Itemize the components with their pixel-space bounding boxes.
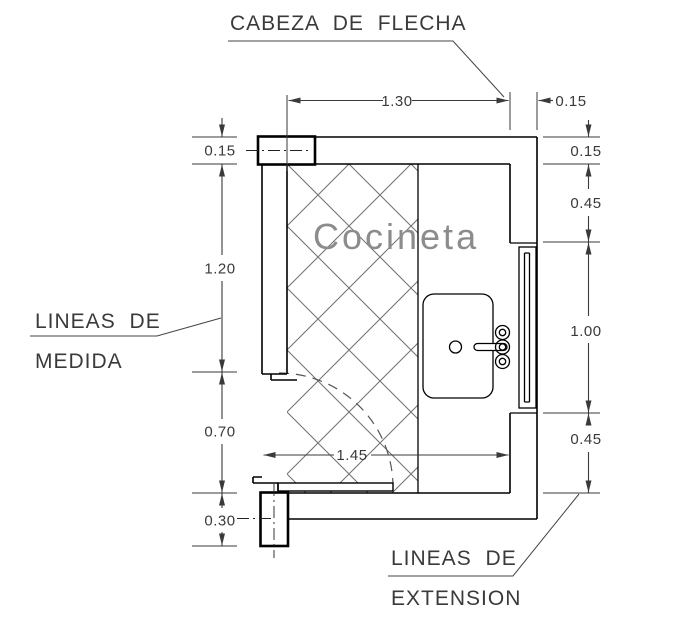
dim-right-window: 1.00 (570, 323, 601, 340)
dim-top-width: 1.30 (381, 93, 412, 110)
door-leaf (278, 483, 393, 491)
arrowhead-label: CABEZA DE FLECHA (230, 12, 467, 35)
dim-right-lower: 0.45 (570, 431, 601, 448)
dimension-top (287, 92, 553, 171)
leader-arrowhead-label (228, 41, 504, 97)
left-wall (262, 164, 287, 374)
floor-plan-canvas: 1.30 0.15 0.15 1.20 0.70 0.30 0.15 0.45 … (0, 0, 684, 619)
measure-label-line1: LINEAS DE (35, 310, 161, 333)
extension-label-line2: EXTENSION (391, 587, 521, 610)
window (510, 243, 537, 413)
sink (423, 294, 510, 398)
right-wall (510, 137, 537, 519)
bottom-wall (288, 493, 537, 519)
dim-top-right-wall: 0.15 (555, 93, 586, 110)
extension-ticks-left (192, 137, 237, 546)
window-frame (519, 247, 536, 408)
room-name-label: Cocineta (313, 216, 479, 257)
dim-left-upper-height: 1.20 (204, 261, 235, 278)
faucet-handle (474, 344, 507, 351)
dim-right-wall-thickness: 0.15 (570, 143, 601, 160)
window-glass (525, 253, 530, 402)
faucet-knob-bottom (496, 355, 510, 369)
dim-left-column: 0.30 (204, 513, 235, 530)
floor-hatch (287, 164, 418, 493)
window-sills (510, 243, 537, 413)
sink-drain (450, 341, 462, 353)
measure-label-line2: MEDIDA (35, 350, 123, 373)
dim-right-upper: 0.45 (570, 195, 601, 212)
top-wall (315, 137, 537, 164)
floor-plan-drawing: 1.30 0.15 0.15 1.20 0.70 0.30 0.15 0.45 … (0, 0, 684, 619)
dim-inner-width: 1.45 (336, 447, 367, 464)
dimension-chain-left (192, 118, 237, 546)
extension-label-line1: LINEAS DE (391, 547, 517, 570)
faucet-knob-top (496, 326, 510, 340)
dim-left-wall-thickness: 0.15 (204, 143, 235, 160)
dim-left-door-opening: 0.70 (204, 424, 235, 441)
